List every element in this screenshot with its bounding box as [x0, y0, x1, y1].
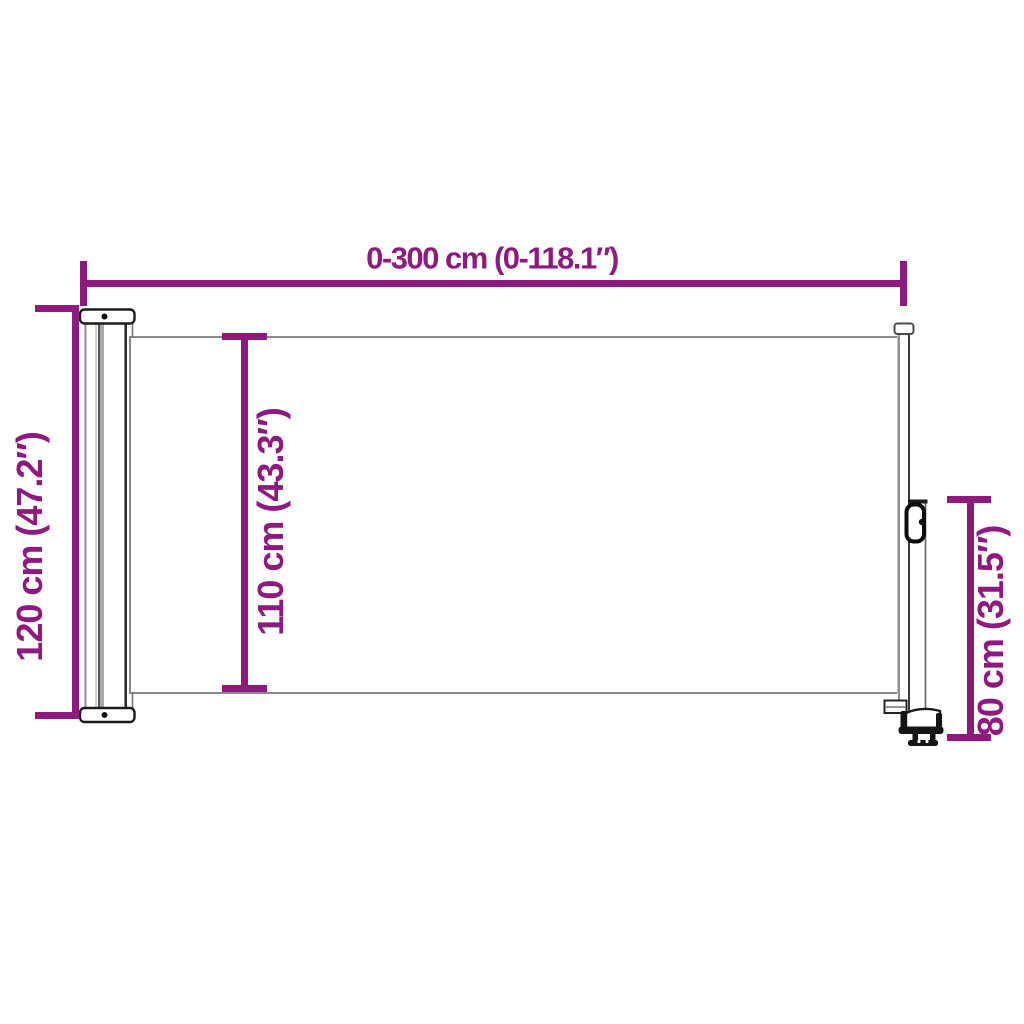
caster-axle-dot-2: [925, 740, 928, 743]
awning-illustration: [0, 0, 1024, 1024]
left-height-dimension-label: 120 cm (47.2″): [12, 432, 48, 661]
middle-height-dimension-cap-bottom: [222, 685, 267, 692]
pole-handle-latch: [919, 519, 925, 525]
middle-height-dimension-label: 110 cm (43.3″): [253, 408, 289, 635]
product-dimension-diagram: 0-300 cm (0-118.1″) 120 cm (47.2″) 110 c…: [0, 0, 1024, 1024]
cassette-bottom-screw: [102, 712, 108, 718]
cassette-post: [80, 310, 135, 723]
right-height-dimension-cap-top: [947, 496, 991, 503]
middle-height-dimension-cap-top: [222, 333, 267, 340]
pole-top-cap: [895, 324, 914, 335]
width-dimension-cap-left: [80, 261, 87, 306]
cassette-top-screw: [102, 314, 108, 320]
right-height-dimension-label: 80 cm (31.5″): [973, 526, 1009, 736]
middle-height-dimension-line: [241, 334, 248, 692]
left-height-dimension-cap-bottom: [35, 712, 79, 719]
caster-axle-dot-1: [917, 740, 920, 743]
width-dimension-label: 0-300 cm (0-118.1″): [366, 243, 618, 274]
caster-right-flange: [936, 713, 942, 733]
pull-pole: [895, 324, 928, 717]
width-dimension-cap-right: [900, 261, 907, 306]
cassette-body: [84, 316, 127, 716]
left-height-dimension-cap-top: [35, 305, 79, 312]
caster-left-flange: [901, 711, 908, 733]
caster-axle: [908, 740, 938, 746]
caster-housing: [906, 709, 940, 728]
width-dimension-line: [80, 280, 907, 287]
left-height-dimension-line: [72, 308, 79, 716]
